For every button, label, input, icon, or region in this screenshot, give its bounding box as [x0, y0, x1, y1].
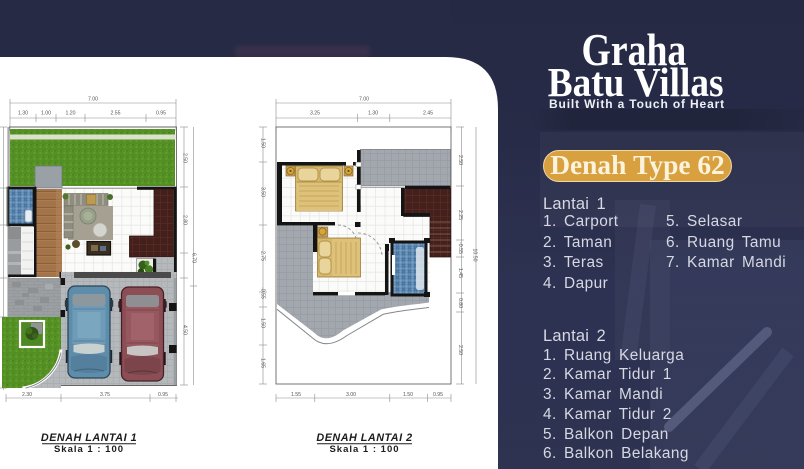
- svg-text:1.45: 1.45: [457, 268, 463, 278]
- svg-text:2.45: 2.45: [423, 111, 433, 117]
- svg-text:0.95: 0.95: [158, 392, 168, 398]
- svg-text:1.65: 1.65: [260, 358, 266, 368]
- svg-text:Skala 1 : 100: Skala 1 : 100: [329, 444, 399, 455]
- svg-text:4.50: 4.50: [182, 325, 188, 335]
- svg-text:-0.55: -0.55: [457, 242, 463, 254]
- svg-text:-0.55: -0.55: [260, 287, 266, 299]
- svg-text:2.50: 2.50: [182, 153, 188, 163]
- svg-text:1.55: 1.55: [291, 392, 301, 398]
- svg-text:0.80: 0.80: [457, 298, 463, 308]
- svg-text:6.70: 6.70: [191, 253, 197, 263]
- svg-text:0.95: 0.95: [433, 392, 443, 398]
- svg-text:2.30: 2.30: [22, 392, 32, 398]
- svg-text:2.50: 2.50: [457, 155, 463, 165]
- svg-text:2.75: 2.75: [260, 251, 266, 261]
- svg-text:3.50: 3.50: [260, 187, 266, 197]
- svg-text:DENAH LANTAI 1: DENAH LANTAI 1: [41, 432, 137, 444]
- svg-text:3.25: 3.25: [310, 111, 320, 117]
- svg-text:1.50: 1.50: [260, 138, 266, 148]
- svg-text:1.50: 1.50: [403, 392, 413, 398]
- svg-text:0.95: 0.95: [156, 111, 166, 117]
- svg-text:2.50: 2.50: [457, 345, 463, 355]
- svg-text:7.00: 7.00: [88, 97, 98, 103]
- svg-text:2.25: 2.25: [457, 210, 463, 220]
- svg-text:3.00: 3.00: [346, 392, 356, 398]
- svg-text:DENAH LANTAI 2: DENAH LANTAI 2: [316, 432, 412, 444]
- svg-text:10.50: 10.50: [472, 249, 478, 262]
- svg-text:1.00: 1.00: [41, 111, 51, 117]
- svg-text:3.75: 3.75: [100, 392, 110, 398]
- svg-text:1.20: 1.20: [65, 111, 75, 117]
- svg-text:Skala 1 : 100: Skala 1 : 100: [54, 444, 124, 455]
- svg-text:2.55: 2.55: [110, 111, 120, 117]
- svg-text:2.80: 2.80: [182, 215, 188, 225]
- svg-text:1.30: 1.30: [368, 111, 378, 117]
- svg-text:7.00: 7.00: [359, 97, 369, 103]
- svg-text:1.30: 1.30: [18, 111, 28, 117]
- svg-text:1.50: 1.50: [260, 318, 266, 328]
